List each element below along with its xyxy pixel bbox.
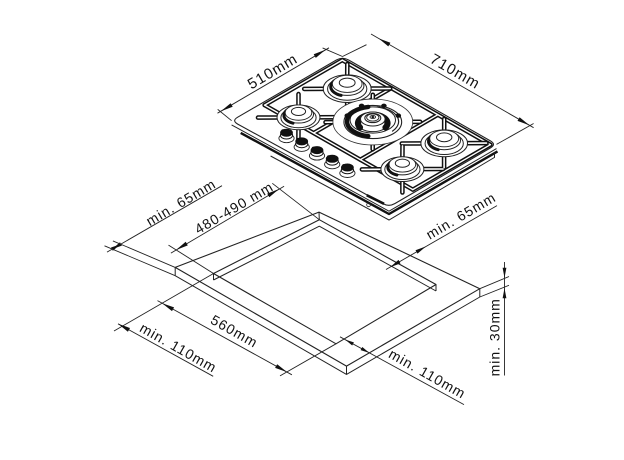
svg-text:min. 30mm: min. 30mm [487,298,503,376]
